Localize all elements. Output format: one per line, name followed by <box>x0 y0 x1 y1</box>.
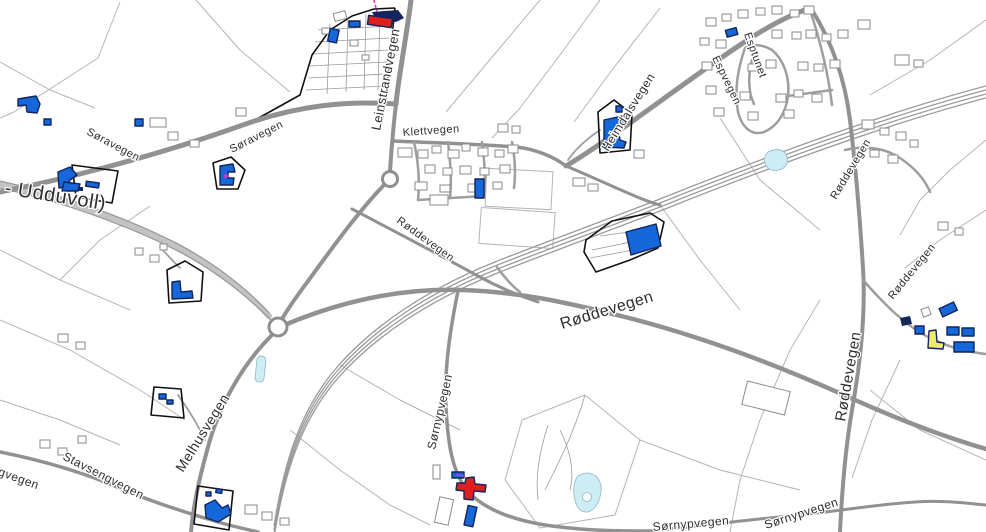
road-label-roddevegen-big: Røddevegen <box>558 288 655 333</box>
building <box>206 492 211 496</box>
road-label-roddevegen-ne: Røddevegen <box>828 137 873 201</box>
field-boundaries <box>0 0 986 532</box>
building <box>915 326 924 334</box>
road-label-engvegen: engvegen <box>0 460 41 493</box>
magenta-dot <box>224 174 228 178</box>
pond-melhus <box>255 356 267 383</box>
buildings-yellow <box>928 330 944 349</box>
building <box>328 28 340 43</box>
road-label-klettvegen: Klettvegen <box>402 123 460 139</box>
map-svg: Søravegen Søravegen - Udduvoll) Leinstra… <box>0 0 986 532</box>
road-label-soravegen-w: Søravegen <box>85 126 142 164</box>
road-label-soravegen-e: Søravegen <box>228 119 285 156</box>
road-label-sornypvegen-se: Sørnypvegen <box>763 495 840 532</box>
building <box>464 505 477 526</box>
road-label-esptunet: Esptunet <box>741 31 768 80</box>
pond-island <box>583 493 592 502</box>
road-label-roddevegen-mid: Røddevegen <box>394 215 456 265</box>
roundabout-north <box>383 172 398 187</box>
magenta-dash <box>456 475 465 476</box>
road-network <box>0 0 986 532</box>
building <box>167 400 173 404</box>
building <box>947 327 959 335</box>
building <box>86 181 100 188</box>
building <box>725 28 737 38</box>
building <box>135 119 143 126</box>
road-label-sornypvegen-n: Sørnypvegen <box>424 373 455 451</box>
building <box>954 342 974 352</box>
map-viewport[interactable]: Søravegen Søravegen - Udduvoll) Leinstra… <box>0 0 986 532</box>
building <box>349 21 360 27</box>
boundary-dashed-magenta <box>374 0 377 12</box>
building <box>475 179 484 198</box>
road-label-roddevegen-e: Røddevegen <box>886 241 938 301</box>
building <box>205 500 231 522</box>
building <box>172 281 193 299</box>
building <box>44 119 51 125</box>
building <box>216 489 223 494</box>
building <box>928 330 944 349</box>
building <box>18 96 40 113</box>
road-labels: Søravegen Søravegen - Udduvoll) Leinstra… <box>0 27 938 532</box>
road-label-sornypvegen-s: Sørnypvegen <box>652 513 730 532</box>
pond-esp <box>764 150 787 171</box>
roundabout-south <box>269 318 287 336</box>
road-label-stavsengvegen: Stavsengvegen <box>61 449 147 502</box>
water-features <box>255 150 788 512</box>
building <box>159 394 166 399</box>
building <box>626 224 661 255</box>
building <box>939 302 957 317</box>
road-label-roddevegen-se: Røddevegen <box>832 330 865 422</box>
building <box>962 328 974 336</box>
